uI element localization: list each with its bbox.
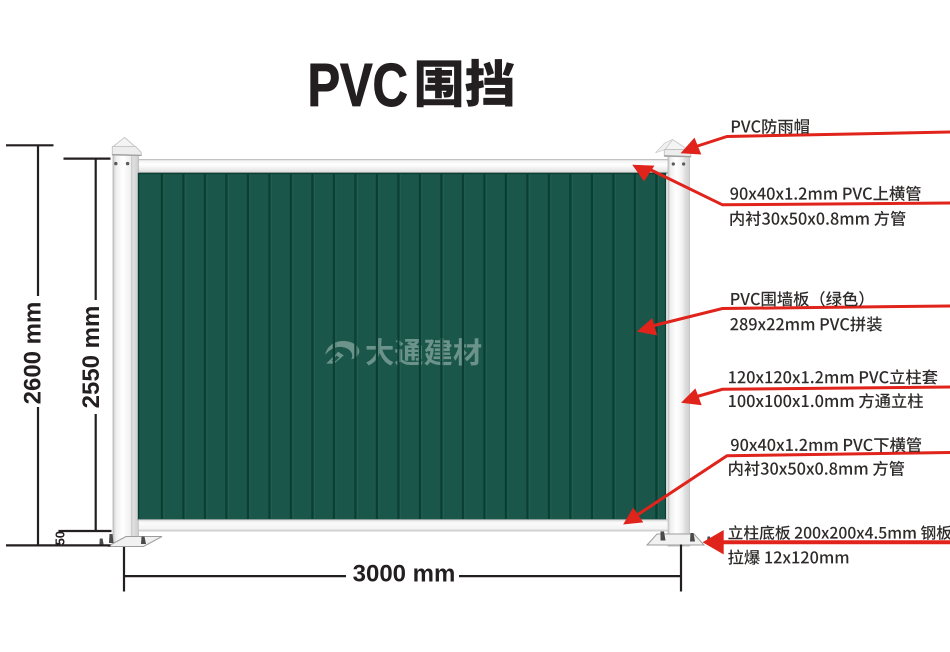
svg-text:2600 mm: 2600 mm — [20, 302, 47, 405]
svg-text:3000 mm: 3000 mm — [353, 561, 456, 588]
svg-text:2550 mm: 2550 mm — [78, 306, 105, 409]
svg-text:50: 50 — [53, 531, 68, 545]
